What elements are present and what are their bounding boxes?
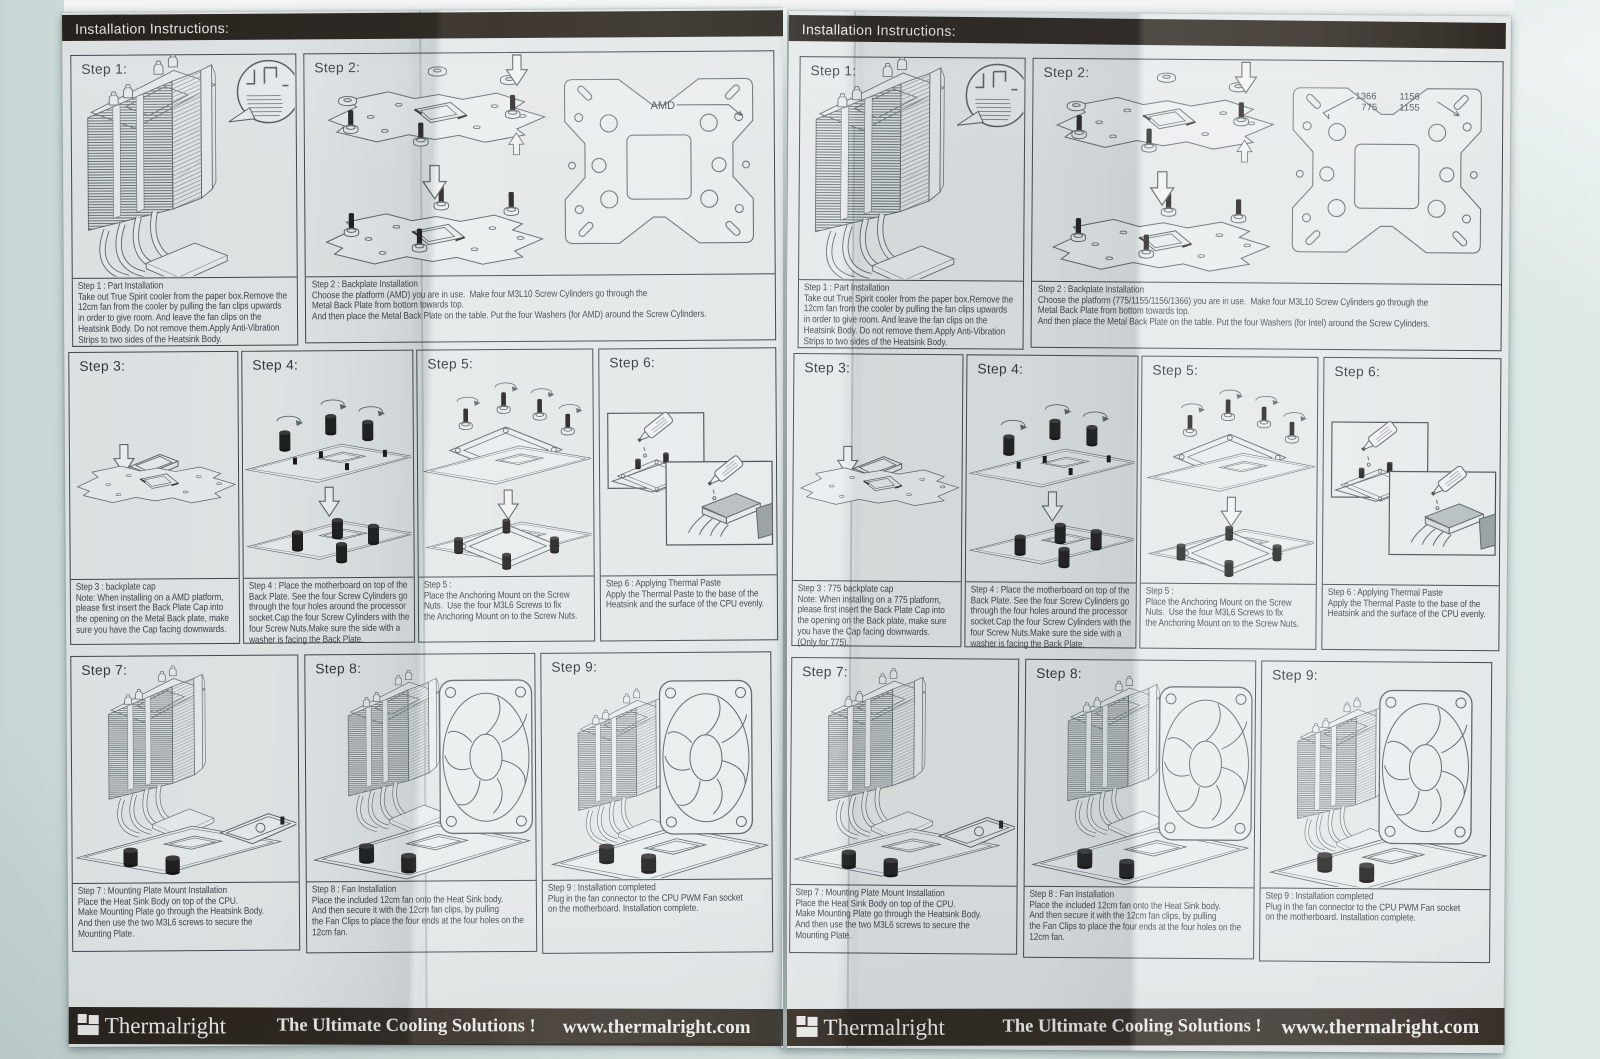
svg-text:AMD: AMD: [651, 100, 676, 112]
svg-text:1155: 1155: [1399, 102, 1420, 113]
svg-text:775: 775: [1361, 102, 1377, 113]
svg-text:1156: 1156: [1399, 91, 1420, 102]
svg-text:1366: 1366: [1355, 91, 1376, 102]
